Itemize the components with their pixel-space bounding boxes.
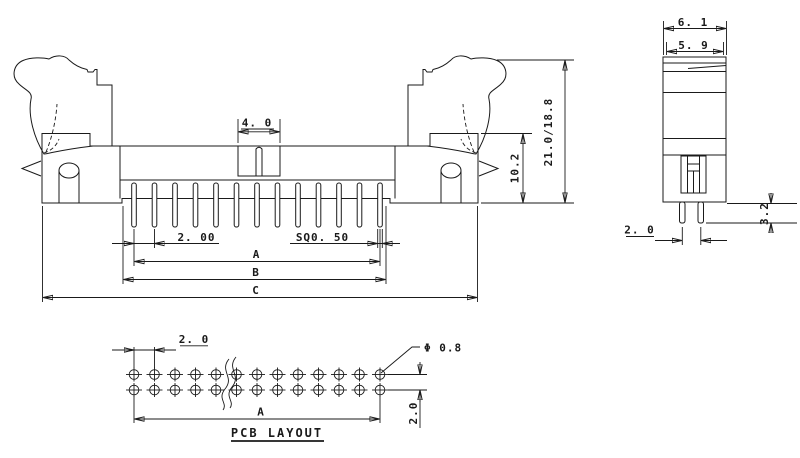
front-pin <box>173 183 178 227</box>
front-pin <box>152 183 157 227</box>
front-pins <box>132 183 383 227</box>
dim-body-height-label: 10.2 <box>509 153 522 184</box>
pcb-title-group: PCB LAYOUT <box>231 426 324 441</box>
dim-pin-length-side: 3.2 <box>706 193 797 232</box>
connector-drawing: 4. 0 21.0/18.8 10.2 2. 00 <box>0 0 800 453</box>
dim-a-pcb-label: A <box>257 406 265 419</box>
dim-row-spacing-label: 2.0 <box>407 402 420 425</box>
dim-c-front-label: C <box>252 284 260 297</box>
pcb-pad <box>188 368 204 382</box>
dim-pitch-front: 2. 00 <box>112 229 219 266</box>
pcb-pad <box>290 368 306 382</box>
front-pin <box>214 183 219 227</box>
pcb-break-marks <box>222 357 236 410</box>
front-pin <box>296 183 301 227</box>
pcb-pad <box>167 368 183 382</box>
pcb-pad <box>126 383 142 397</box>
front-pin <box>357 183 362 227</box>
front-pin <box>337 183 342 227</box>
dim-key-width-label: 4. 0 <box>242 117 273 130</box>
pcb-pad <box>147 383 163 397</box>
latch-left <box>14 56 112 176</box>
pcb-pad <box>167 383 183 397</box>
pcb-pad <box>249 368 265 382</box>
front-view: 4. 0 21.0/18.8 10.2 2. 00 <box>14 56 574 302</box>
side-pins <box>680 202 704 223</box>
dim-pitch-front-label: 2. 00 <box>177 231 215 244</box>
side-body-section-lines <box>663 63 726 155</box>
dim-body-height: 10.2 <box>481 134 532 203</box>
pcb-pad <box>352 368 368 382</box>
latch-left-outline <box>14 56 112 154</box>
pcb-pad <box>372 383 388 397</box>
front-pin <box>132 183 137 227</box>
pcb-pad <box>188 383 204 397</box>
front-body-outline <box>42 134 478 204</box>
key-slot <box>238 146 280 176</box>
dim-pin-spacing-side: 2. 0 <box>624 224 727 246</box>
front-pin <box>316 183 321 227</box>
dim-outer-width-label: 6. 1 <box>678 16 709 29</box>
dim-row-spacing: 2.0 <box>388 362 427 428</box>
front-pin <box>378 183 383 227</box>
pcb-pad <box>331 383 347 397</box>
pcb-pad <box>290 383 306 397</box>
pcb-pads <box>126 368 388 398</box>
pcb-pad <box>352 383 368 397</box>
front-pin <box>234 183 239 227</box>
pcb-pad <box>147 368 163 382</box>
side-body <box>663 57 726 202</box>
dim-pin-length-side-label: 3.2 <box>758 202 771 225</box>
technical-drawing-page: 4. 0 21.0/18.8 10.2 2. 00 <box>0 0 800 453</box>
dim-total-height: 21.0/18.8 <box>481 60 574 203</box>
dim-total-height-label: 21.0/18.8 <box>542 98 555 167</box>
pcb-pad <box>208 368 224 382</box>
dim-a-front-label: A <box>253 248 261 261</box>
pcb-pad <box>311 368 327 382</box>
dim-b-front-label: B <box>252 266 260 279</box>
pcb-pad <box>126 368 142 382</box>
pcb-pad <box>249 383 265 397</box>
pcb-pad <box>311 383 327 397</box>
front-pin <box>193 183 198 227</box>
dim-pin-spacing-side-label: 2. 0 <box>624 224 655 237</box>
pcb-pad <box>270 383 286 397</box>
dim-pitch-pcb-label: 2. 0 <box>179 333 210 346</box>
front-pin <box>255 183 260 227</box>
mounting-hole-left <box>59 163 79 203</box>
pcb-pad <box>270 368 286 382</box>
dim-inner-width: 5. 9 <box>667 39 724 55</box>
dim-a-pcb: A <box>134 396 380 423</box>
dim-pitch-pcb: 2. 0 <box>112 333 209 368</box>
pcb-pad <box>229 368 245 382</box>
mounting-hole-right <box>441 163 461 203</box>
board-lock-spike-left <box>22 161 41 176</box>
dim-pin-square-label: SQ0. 50 <box>296 231 349 244</box>
dim-hole-diameter: Φ 0.8 <box>381 342 462 374</box>
latch-right-outline <box>408 56 506 154</box>
pcb-pad <box>331 368 347 382</box>
side-view: 6. 1 5. 9 2. 0 3.2 <box>624 16 797 245</box>
dim-pin-square: SQ0. 50 <box>290 229 400 248</box>
front-pin <box>275 183 280 227</box>
pcb-layout: 2. 0 Φ 0.8 2.0 A PCB LAYOUT <box>112 333 462 441</box>
dim-key-width: 4. 0 <box>238 117 280 144</box>
pcb-title: PCB LAYOUT <box>231 426 323 440</box>
latch-right <box>408 56 506 176</box>
side-contact-detail <box>681 156 706 193</box>
dim-inner-width-label: 5. 9 <box>678 39 709 52</box>
board-lock-spike-right <box>479 161 498 176</box>
dim-hole-diameter-label: Φ 0.8 <box>424 342 462 355</box>
pcb-pad <box>229 383 245 397</box>
pcb-pad <box>208 383 224 397</box>
